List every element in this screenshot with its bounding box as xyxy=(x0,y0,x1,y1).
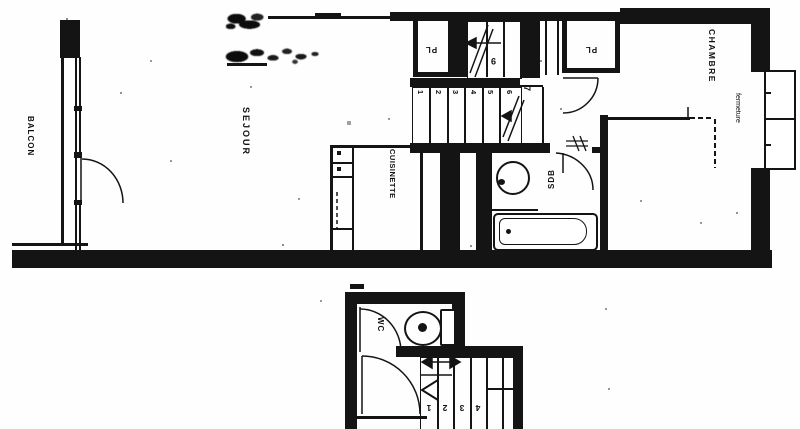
closure-label: fermeture xyxy=(734,93,741,123)
stair-number: 4 xyxy=(472,399,483,412)
bedroom-label: CHAMBRE xyxy=(708,29,717,83)
stair-landing-number: 7 xyxy=(522,86,531,92)
stair-number: 6 xyxy=(506,90,514,95)
bathroom-door-arc xyxy=(556,153,593,190)
lower-stair-arrow xyxy=(421,356,460,400)
living-room-label: SEJOUR xyxy=(241,107,250,156)
stair-number: 1 xyxy=(423,399,434,412)
balcony-door-arc xyxy=(81,158,123,204)
plan-linework xyxy=(0,0,800,429)
stair-number: 3 xyxy=(452,90,460,95)
stair-number: 2 xyxy=(435,90,443,95)
apartment-floor-plan: BALCON SEJOUR CUISINETTE CHAMBRE fermetu… xyxy=(0,0,800,429)
stair-number: 2 xyxy=(439,399,450,412)
wc-label: WC xyxy=(376,317,384,332)
closure-dashed-line xyxy=(688,107,715,168)
scan-noise xyxy=(0,0,2,2)
ink-smudge xyxy=(226,11,264,33)
stair-number: 3 xyxy=(456,399,467,412)
stair-number: 5 xyxy=(487,90,495,95)
main-stair-break xyxy=(502,96,524,141)
bedroom-door-arc xyxy=(563,78,598,113)
closet-right-label: PL xyxy=(582,39,600,53)
kitchenette-label: CUISINETTE xyxy=(389,149,397,199)
closet-left-label: PL xyxy=(422,39,440,53)
radiator-symbol xyxy=(566,136,588,151)
bathroom-label: SDB xyxy=(548,169,556,189)
stair-number: 1 xyxy=(417,90,425,95)
entry-door-arc xyxy=(362,356,420,414)
balcony-label: BALCON xyxy=(26,116,34,156)
stair-number: 4 xyxy=(470,90,478,95)
ink-smudge-underline xyxy=(227,63,267,66)
stair-number-9: 9 xyxy=(486,51,500,65)
